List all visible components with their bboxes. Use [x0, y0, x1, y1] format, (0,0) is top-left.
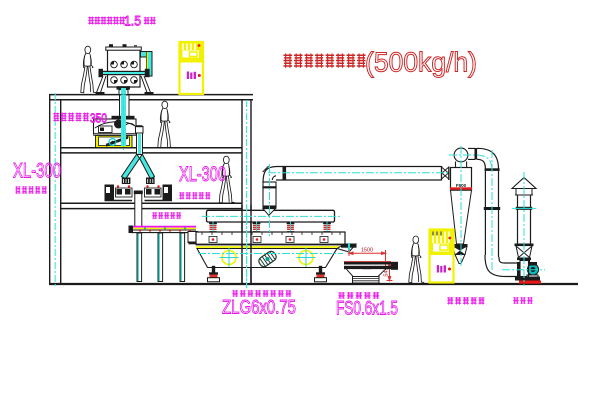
svg-text:XL-300: XL-300 — [179, 163, 226, 186]
svg-text:1500: 1500 — [361, 248, 373, 254]
svg-text:FS0.6x1.5: FS0.6x1.5 — [336, 299, 398, 320]
svg-text:ZLG6x0.75: ZLG6x0.75 — [222, 298, 296, 319]
svg-text:350: 350 — [90, 111, 107, 126]
svg-text:1.5: 1.5 — [124, 13, 141, 29]
svg-text:(500kg/h): (500kg/h) — [365, 47, 477, 78]
svg-text:XL-300: XL-300 — [13, 160, 61, 183]
